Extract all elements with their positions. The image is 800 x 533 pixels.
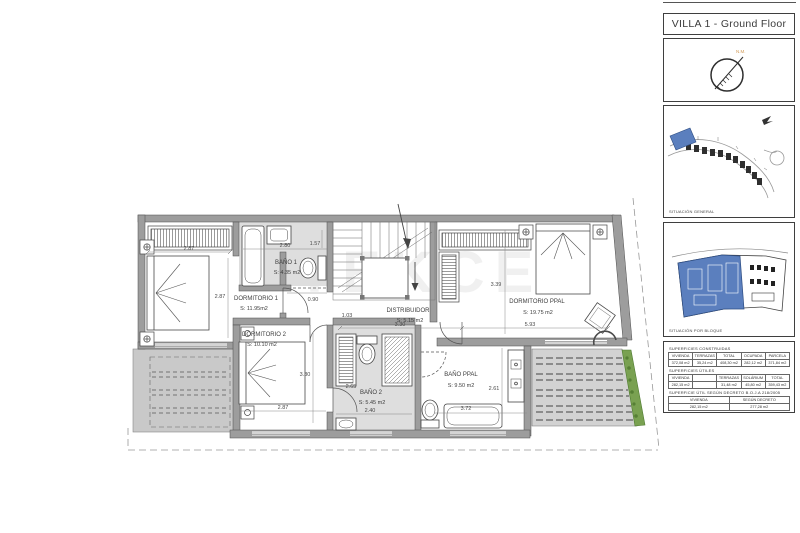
table-header: TOTAL: [717, 353, 741, 360]
bed-icon: [239, 342, 305, 404]
table-cell: 282,12 m2: [741, 360, 765, 367]
map-caption-general: SITUACIÓN GENERAL: [669, 209, 714, 214]
dimension-label: 2.87: [184, 246, 195, 252]
title-block: VILLA 1 - Ground Floor: [663, 13, 795, 35]
room-area-dormitorio-2: S: 10.10 m2: [247, 342, 277, 348]
table-header: TERRAZAS: [693, 353, 717, 360]
room-label-dormitorio-ppal: DORMITORIO PPAL: [509, 299, 565, 305]
dimension-label: 3.72: [461, 406, 472, 412]
bed-icon: [147, 256, 209, 330]
bed-icon: [536, 224, 590, 294]
highlight-villa-block: [670, 128, 696, 150]
table-header: SOLÁRIUM: [741, 375, 765, 382]
dimension-label: 2.80: [280, 243, 291, 249]
site-map-general: SITUACIÓN GENERAL: [663, 105, 795, 218]
room-area-bano-ppal: S: 9.50 m2: [448, 383, 475, 389]
table-header: PARCELA: [765, 353, 789, 360]
table-cell: 372,08 m2: [669, 360, 693, 367]
room-label-dormitorio-1: DORMITORIO 1: [234, 296, 279, 302]
table-header: TOTAL: [765, 375, 789, 382]
dimension-label: 0.90: [308, 297, 319, 303]
table-header: SEGÚN DECRETO: [729, 397, 790, 404]
table-cell: 45,80 m2: [741, 382, 765, 389]
table-header: TERRAZAS: [717, 375, 741, 382]
vanity-icon: [508, 350, 524, 402]
table-cell: 359,43 m2: [765, 382, 789, 389]
constructed-areas-title: SUPERFICIES CONSTRUIDAS: [669, 346, 790, 351]
useful-areas-title: SUPERFICIES ÚTILES: [669, 368, 790, 373]
dimension-label: 3.39: [491, 282, 502, 288]
room-area-distribuidor: S: 5.15 m2: [397, 318, 424, 324]
table-cell: 35,24 m2: [693, 360, 717, 367]
dimension-label: 5.93: [525, 322, 536, 328]
table-cell: 282,15 m2: [669, 404, 730, 411]
decree-area-title: SUPERFICIE ÚTIL SEGÚN DECRETO B.O.J.A 21…: [669, 390, 790, 395]
table-cell: 408,30 m2: [717, 360, 741, 367]
table-cell: 371,84 m2: [765, 360, 789, 367]
dimension-label: 2.40: [365, 408, 376, 414]
table-header: VIVIENDA: [669, 353, 693, 360]
areas-table-panel: SUPERFICIES CONSTRUIDAS VIVIENDA TERRAZA…: [663, 341, 795, 413]
compass-icon: N.M.: [664, 39, 794, 101]
table-cell: 277,28 m2: [729, 404, 790, 411]
dimension-label: 2.65: [346, 384, 357, 390]
room-label-bano-ppal: BAÑO PPAL: [444, 371, 478, 378]
dimension-label: 2.87: [278, 405, 289, 411]
table-header: [693, 375, 717, 382]
landmark-icon: [762, 116, 773, 125]
room-area-bano-2: S: 5.45 m2: [359, 400, 386, 406]
table-cell: [693, 382, 717, 389]
site-map-general-drawing: [664, 106, 794, 206]
decree-area-table: VIVIENDA SEGÚN DECRETO 282,15 m2 277,28 …: [668, 396, 790, 411]
table-cell: 31,48 m2: [717, 382, 741, 389]
table-header: OCUPADA: [741, 353, 765, 360]
page-title: VILLA 1 - Ground Floor: [672, 18, 787, 30]
room-area-dormitorio-1: S: 11.95m2: [240, 306, 268, 312]
dimension-label: 1.57: [310, 241, 321, 247]
room-label-dormitorio-2: DORMITORIO 2: [242, 332, 287, 338]
room-label-bano-2: BAÑO 2: [360, 389, 383, 396]
room-area-bano-1: S: 4.35 m2: [274, 270, 301, 276]
dimension-label: 2.61: [489, 386, 500, 392]
site-map-block-drawing: [664, 223, 794, 325]
terrace-right: [532, 349, 637, 426]
table-header: VIVIENDA: [669, 397, 730, 404]
map-caption-block: SITUACIÓN POR BLOQUE: [669, 328, 722, 333]
dimension-label: 2.87: [215, 294, 226, 300]
useful-areas-table: VIVIENDA TERRAZAS SOLÁRIUM TOTAL 282,15 …: [668, 374, 790, 389]
sheet-top-rule: [663, 2, 796, 3]
north-label: N.M.: [736, 49, 746, 54]
site-map-block: SITUACIÓN POR BLOQUE: [663, 222, 795, 337]
dimension-label: 1.03: [342, 313, 353, 319]
room-label-bano-1: BAÑO 1: [275, 259, 298, 266]
dimension-label: 3.30: [300, 372, 311, 378]
table-cell: 282,15 m2: [669, 382, 693, 389]
constructed-areas-table: VIVIENDA TERRAZAS TOTAL OCUPADA PARCELA …: [668, 352, 790, 367]
room-label-distribuidor: DISTRIBUIDOR: [386, 308, 430, 314]
terrace-left: [133, 349, 237, 432]
compass-panel: N.M.: [663, 38, 795, 102]
table-header: VIVIENDA: [669, 375, 693, 382]
room-area-dormitorio-ppal: S: 19.75 m2: [523, 310, 553, 316]
